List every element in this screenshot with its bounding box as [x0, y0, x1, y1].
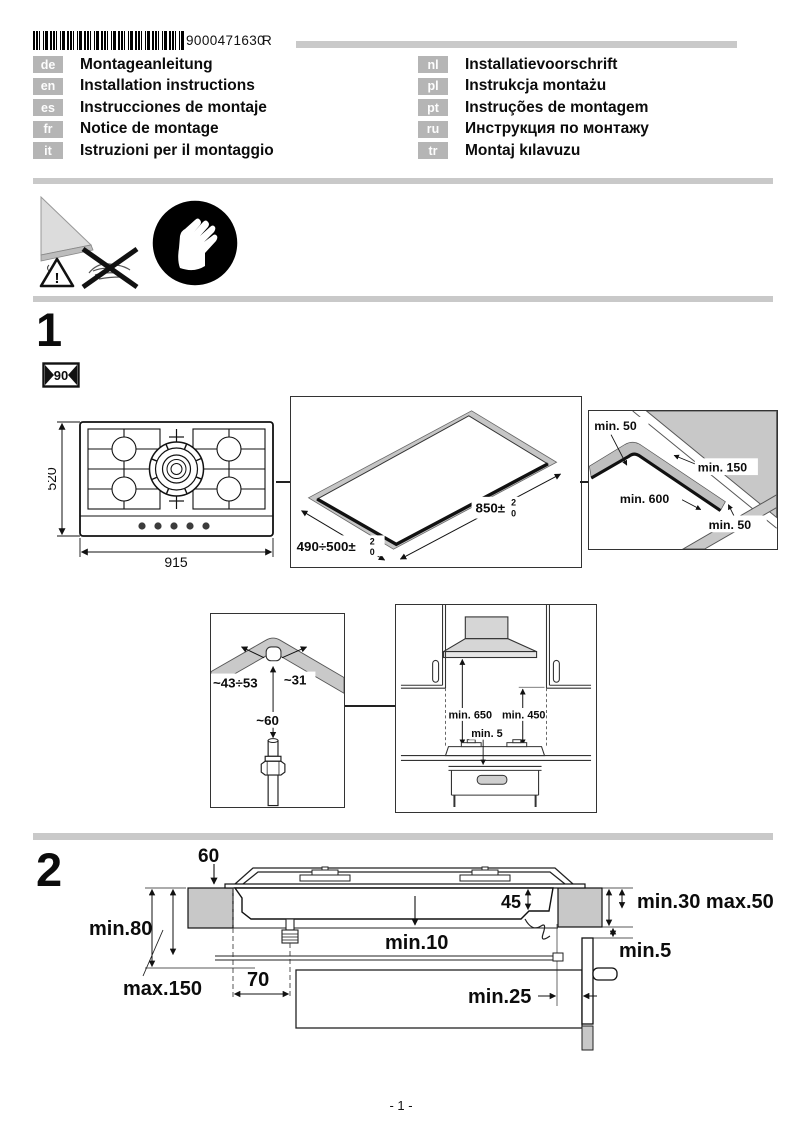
dim-60: 60 — [198, 848, 219, 867]
hood-left-clearance: min. 650 — [448, 709, 492, 721]
badge-90-label: 90 — [54, 368, 68, 383]
drawer-front-panel — [582, 938, 593, 1024]
cutout-length-tol-sub: 0 — [511, 509, 516, 519]
language-code-badge: nl — [418, 56, 448, 73]
section-divider — [33, 296, 773, 302]
language-row: trMontaj kılavuzu — [418, 142, 649, 159]
hob-cross-section — [446, 740, 545, 756]
corner-clearances-drawing: min. 50 min. 150 min. 600 min. 50 — [588, 410, 778, 550]
corner-bottom-clearance: min. 50 — [709, 518, 752, 532]
dim-70: 70 — [247, 969, 269, 991]
language-code-badge: fr — [33, 121, 63, 138]
burner-caps — [300, 867, 510, 881]
language-code-badge: de — [33, 56, 63, 73]
worktop-left-cut — [188, 888, 233, 928]
language-title: Notice de montage — [80, 120, 219, 138]
panel-connector — [276, 481, 290, 483]
corner-center-clearance: min. 600 — [620, 492, 669, 506]
language-code-badge: tr — [418, 142, 448, 159]
language-list-right: nlInstallatievoorschrift plInstrukcja mo… — [418, 56, 649, 159]
corner-top-clearance: min. 50 — [594, 419, 637, 433]
worktop-cutout-drawing: 850± 2 0 490÷500± 2 0 — [290, 396, 582, 568]
language-row: plInstrukcja montażu — [418, 78, 649, 95]
revision-code: R — [262, 33, 272, 48]
language-row: itIstruzioni per il montaggio — [33, 142, 274, 159]
svg-text:!: ! — [55, 270, 60, 287]
panel-connector — [580, 481, 588, 483]
pan-support — [235, 868, 573, 884]
dim-max150: max.150 — [123, 978, 202, 1000]
language-title: Instrucciones de montaje — [80, 99, 267, 117]
gas-right-dim: ~31 — [284, 672, 307, 687]
section-divider — [33, 178, 773, 184]
gas-connection-drawing: ~43÷53 ~31 ~60 — [210, 613, 345, 808]
hood-gap-clearance: min. 5 — [471, 728, 502, 740]
drawer-handle — [593, 968, 617, 980]
language-row: deMontageanleitung — [33, 56, 274, 73]
dim-min80: min.80 — [89, 918, 152, 940]
barcode-image — [33, 31, 185, 50]
section-divider — [33, 833, 773, 840]
panel-connector — [345, 705, 395, 707]
language-list-left: deMontageanleitung enInstallation instru… — [33, 56, 274, 159]
hob-top-view-drawing: 520 — [48, 416, 283, 568]
dim-min30-max50: min.30 max.50 — [637, 891, 774, 913]
language-title: Montaj kılavuzu — [465, 142, 580, 160]
language-code-badge: ru — [418, 121, 448, 138]
dim-45: 45 — [501, 892, 521, 912]
language-title: Montageanleitung — [80, 56, 213, 74]
language-code-badge: es — [33, 99, 63, 116]
cutout-width-tol-sub: 0 — [370, 547, 375, 557]
language-code-badge: pl — [418, 78, 448, 95]
language-row: nlInstallatievoorschrift — [418, 56, 649, 73]
document-page: 9000471630 R deMontageanleitung enInstal… — [0, 0, 802, 1134]
cutout-width-tol-sup: 2 — [370, 536, 375, 546]
corner-right-clearance: min. 150 — [698, 461, 747, 475]
dim-min5: min.5 — [619, 940, 671, 962]
language-row: ptInstruções de montagem — [418, 99, 649, 116]
language-title: Installation instructions — [80, 77, 255, 95]
hood-right-clearance: min. 450 — [502, 709, 546, 721]
hood-clearances-drawing: min. 650 min. 450 min. 5 — [395, 604, 597, 813]
gas-left-dim: ~43÷53 — [213, 675, 258, 690]
step-2-number: 2 — [36, 846, 62, 893]
fixing-clamp — [525, 919, 550, 939]
extractor-hood — [444, 617, 537, 658]
drawer-unit — [448, 766, 541, 807]
header-divider-bar — [296, 41, 737, 48]
dim-min25: min.25 — [468, 986, 531, 1008]
cutout-length-tol-sup: 2 — [511, 498, 516, 508]
dim-min10: min.10 — [385, 932, 448, 954]
language-row: frNotice de montage — [33, 121, 274, 138]
language-title: Инструкция по монтажу — [465, 120, 649, 138]
language-title: Instruções de montagem — [465, 99, 648, 117]
language-row: esInstrucciones de montaje — [33, 99, 274, 116]
gas-down-dim: ~60 — [256, 713, 279, 728]
language-title: Instrukcja montażu — [465, 77, 606, 95]
gas-pipe — [261, 739, 285, 806]
worktop-right-cut — [558, 888, 602, 927]
language-code-badge: it — [33, 142, 63, 159]
step-1-number: 1 — [36, 306, 62, 353]
language-code-badge: en — [33, 78, 63, 95]
dim-width-915: 915 — [164, 554, 188, 568]
cutout-length-label: 850± — [476, 501, 506, 516]
fixing-screw — [282, 919, 298, 943]
width-90-badge: 90 — [42, 362, 80, 388]
sharp-edge-warning-icon: ! — [33, 193, 155, 293]
base-cabinet — [296, 970, 582, 1028]
page-number: - 1 - — [0, 1098, 802, 1113]
language-title: Installatievoorschrift — [465, 56, 617, 74]
wear-gloves-icon — [150, 198, 240, 288]
language-row: enInstallation instructions — [33, 78, 274, 95]
language-code-badge: pt — [418, 99, 448, 116]
installation-cross-section-drawing: 60 min.80 max.150 70 45 min.30 max.50 mi… — [85, 848, 785, 1053]
panel-lower-section — [582, 1026, 593, 1050]
language-row: ruИнструкция по монтажу — [418, 121, 649, 138]
cutout-width-label: 490÷500± — [297, 539, 356, 554]
barcode-number: 9000471630 — [186, 33, 265, 48]
language-title: Istruzioni per il montaggio — [80, 142, 274, 160]
dim-depth-520: 520 — [48, 467, 59, 491]
